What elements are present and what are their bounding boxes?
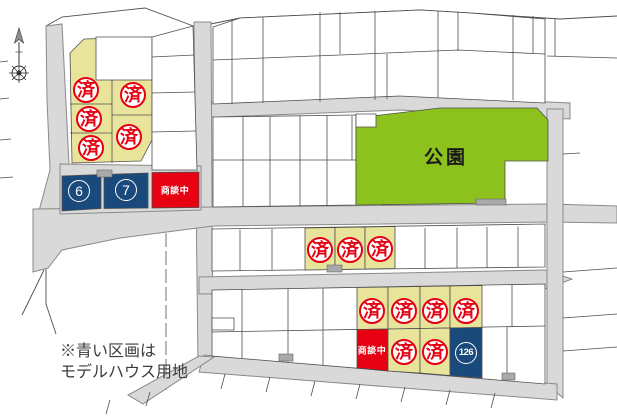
block-middle-left — [213, 115, 356, 207]
lot-sold-b2 — [388, 287, 420, 330]
park-label: 公園 — [424, 143, 468, 170]
lot-sold-a1 — [305, 228, 335, 271]
lot-sold-b5 — [388, 329, 420, 374]
block-right-edge — [563, 153, 617, 351]
road-right-vertical — [547, 109, 563, 398]
legend-note-line1: ※青い区画は — [60, 341, 188, 362]
legend-note-line2: モデルハウス用地 — [60, 362, 188, 383]
lot-map: 済済済済済済済済済済済済済済商談中商談中67126 公園 ※青い区画は モデルハ… — [0, 0, 617, 417]
lot-model-house-126 — [450, 328, 482, 379]
lot-model-house-7 — [104, 173, 148, 209]
block-top-left — [62, 26, 199, 211]
lot-sold-b1 — [357, 287, 388, 330]
lot-sold-a2 — [335, 227, 365, 270]
lot-sold-b6 — [420, 328, 450, 376]
lot-sold-b3 — [420, 286, 450, 329]
legend-note: ※青い区画は モデルハウス用地 — [60, 341, 188, 383]
lot-sold-a3 — [365, 227, 395, 270]
lot-model-house-6 — [62, 175, 101, 212]
lot-sold-b4 — [450, 286, 482, 329]
compass-north-icon — [9, 28, 29, 83]
lot-negotiating-1 — [152, 172, 199, 208]
block-row-a — [212, 224, 545, 271]
block-top-middle — [213, 10, 617, 104]
lot-negotiating-2 — [357, 329, 388, 371]
